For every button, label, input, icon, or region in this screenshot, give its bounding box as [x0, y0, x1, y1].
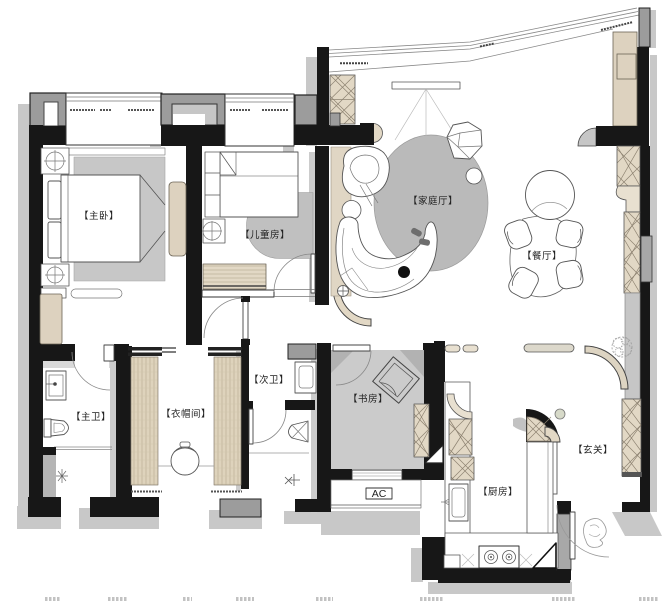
- svg-text:【主卧】: 【主卧】: [79, 210, 119, 222]
- svg-text:【餐厅】: 【餐厅】: [522, 250, 562, 262]
- svg-text:【次卫】: 【次卫】: [249, 374, 289, 386]
- svg-text:【书房】: 【书房】: [348, 393, 388, 405]
- svg-text:【主卫】: 【主卫】: [71, 411, 111, 423]
- svg-text:【衣帽间】: 【衣帽间】: [161, 408, 211, 420]
- svg-text:【玄关】: 【玄关】: [573, 444, 613, 456]
- svg-text:【儿童房】: 【儿童房】: [240, 229, 290, 241]
- svg-text:AC: AC: [372, 488, 387, 500]
- svg-text:【厨房】: 【厨房】: [478, 486, 518, 498]
- svg-text:【家庭厅】: 【家庭厅】: [408, 195, 458, 207]
